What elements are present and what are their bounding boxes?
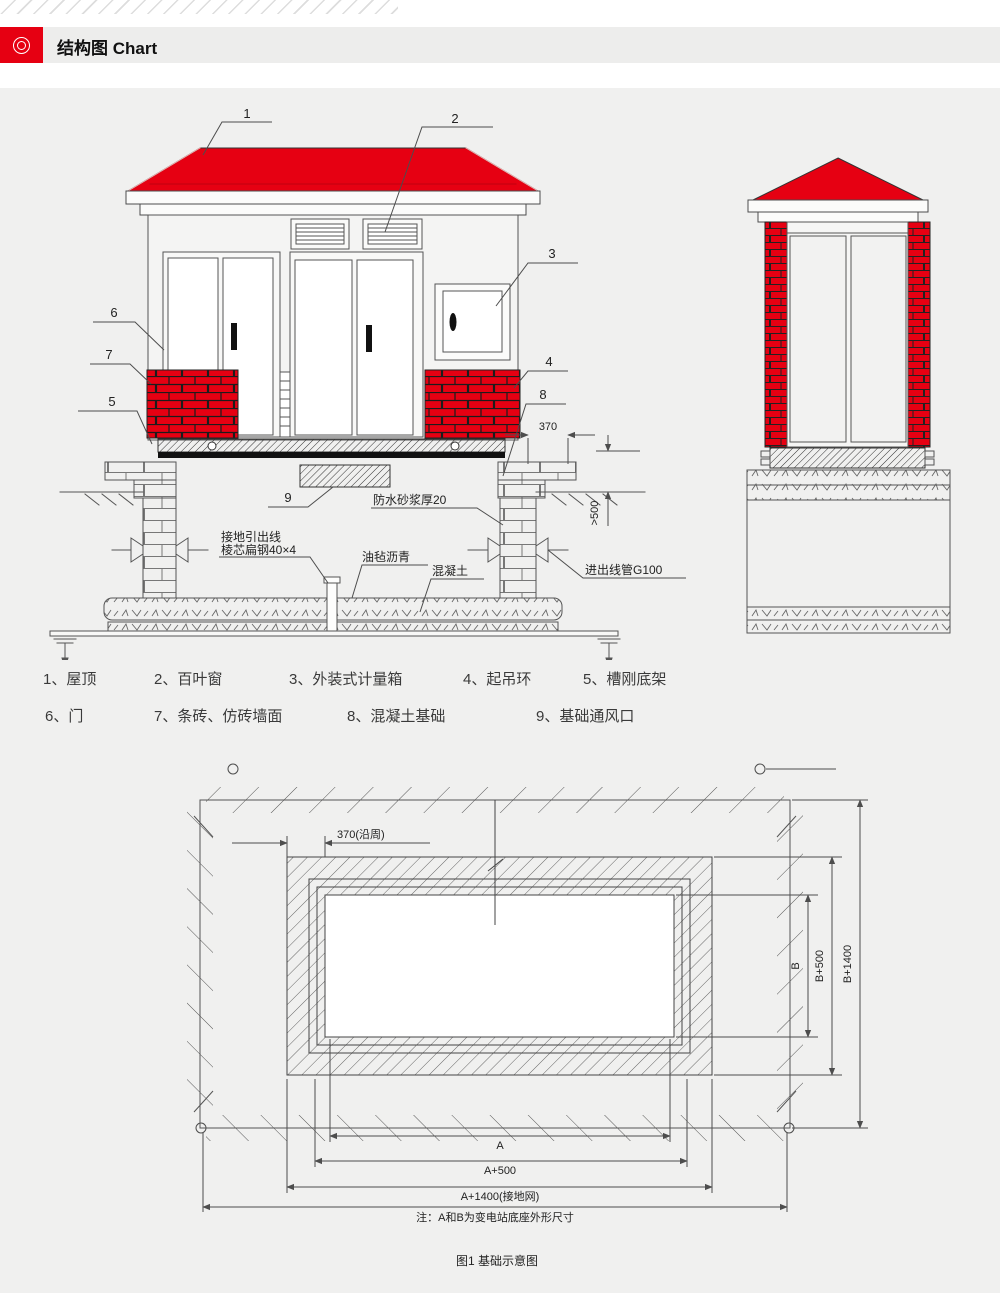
louver-vent-right: [363, 219, 422, 249]
door-assembly-middle: [290, 252, 423, 437]
foundation-pier-left: [105, 462, 176, 598]
front-roof: [128, 148, 538, 191]
door-handle: [366, 325, 372, 352]
front-fascia-upper: [126, 191, 540, 204]
door-handle: [231, 323, 237, 350]
structure-elevation-drawing: 1 2 3 6 7 5 4 8 9 防水砂浆厚20 接地引出线 棱芯扁钢40×4: [0, 88, 1000, 660]
dim-370-label: 370: [539, 421, 557, 433]
ground-anchor-right: [598, 639, 620, 660]
dim-overall-note: 注：A和B为变电站底座外形尺寸: [203, 1133, 787, 1224]
ring-target-icon: [13, 37, 30, 54]
callout-4-label: 4: [545, 354, 552, 369]
legend-item-louver: 2、百叶窗: [154, 668, 222, 689]
wall-ladder-strip: [280, 372, 290, 437]
side-brick-pillar-left: [765, 222, 787, 447]
side-fascia-lower: [758, 212, 918, 222]
louver-vent-left: [291, 219, 349, 249]
legend-item-fdnvent: 9、基础通风口: [536, 705, 634, 726]
channel-steel-base: [158, 439, 505, 458]
note-asphalt-label: 油毡沥青: [362, 550, 410, 564]
page: 结构图 Chart: [0, 0, 1000, 1293]
header-bar: 结构图 Chart: [0, 27, 1000, 63]
note-conduit: 进出线管G100: [548, 550, 686, 578]
foundation-plan-drawing: 370(沿周) B B+500 B+1400 A: [0, 740, 1000, 1293]
legend-item-channelbase: 5、槽刚底架: [583, 668, 666, 689]
side-brick-pillar-right: [908, 222, 930, 447]
side-foundation: [747, 470, 950, 633]
dim-gt500: >500: [589, 435, 640, 526]
side-door-panels: [787, 222, 908, 447]
front-fascia-lower: [140, 204, 526, 215]
note-waterproof-label: 防水砂浆厚20: [373, 492, 447, 507]
dim-a500-label: A+500: [484, 1165, 516, 1177]
callout-5: 5: [78, 394, 152, 444]
dim-a1400-label: A+1400(接地网): [461, 1190, 540, 1203]
legend-item-brickwall: 7、条砖、仿砖墙面: [154, 705, 282, 726]
callout-9: 9: [268, 487, 333, 507]
dim-b1400-label: B+1400: [842, 945, 854, 983]
callout-4: 4: [514, 354, 568, 388]
side-roof: [753, 158, 923, 200]
callout-9-label: 9: [284, 490, 291, 505]
callout-2-label: 2: [451, 111, 458, 126]
header-red-badge: [0, 27, 43, 63]
callout-6-label: 6: [110, 305, 117, 320]
dim-b-label: B: [790, 962, 802, 969]
dim-a-label: A: [496, 1140, 504, 1152]
note-conduit-label: 进出线管G100: [585, 562, 663, 577]
legend-item-liftring: 4、起吊环: [463, 668, 531, 689]
foundation-vent: [300, 465, 390, 487]
brick-wall-right: [425, 370, 520, 438]
ground-anchor-left: [54, 639, 76, 660]
dim-gt500-label: >500: [589, 501, 601, 526]
plan-note: 注：A和B为变电站底座外形尺寸: [416, 1210, 574, 1224]
ground-line-left: [60, 492, 143, 505]
brick-wall-left: [147, 370, 238, 438]
ground-slab: [50, 631, 618, 636]
note-ground-lead-line1: 接地引出线: [221, 529, 281, 544]
side-base-channel: [761, 448, 934, 468]
dim-b1400: B+1400: [792, 800, 868, 1128]
metering-box: [435, 284, 510, 360]
plan-caption: 图1 基础示意图: [456, 1253, 538, 1268]
dim-370-perimeter-label: 370(沿周): [337, 828, 385, 841]
legend-item-door: 6、门: [45, 705, 83, 726]
legend-item-roof: 1、屋顶: [43, 668, 96, 689]
dim-370-perimeter: 370(沿周): [232, 828, 430, 857]
header-stripes-decoration: [0, 0, 398, 14]
lifting-ring-right: [451, 442, 459, 450]
note-ground-lead-line2: 棱芯扁钢40×4: [221, 542, 296, 557]
side-view: [747, 158, 950, 633]
page-title: 结构图 Chart: [57, 34, 157, 59]
foundation-ring: [287, 800, 712, 1075]
lifting-ring-left: [208, 442, 216, 450]
note-asphalt: 油毡沥青: [352, 550, 428, 598]
callout-5-label: 5: [108, 394, 115, 409]
note-waterproof: 防水砂浆厚20: [371, 492, 503, 525]
foundation-pier-right: [498, 462, 576, 598]
callout-1-label: 1: [243, 106, 250, 121]
callout-7: 7: [90, 347, 151, 384]
legend-item-concretefdn: 8、混凝土基础: [347, 705, 445, 726]
callout-8-label: 8: [539, 387, 546, 402]
dim-b500-label: B+500: [814, 950, 826, 982]
note-ground-lead: 接地引出线 棱芯扁钢40×4: [219, 529, 328, 583]
note-concrete-label: 混凝土: [432, 563, 468, 578]
legend-item-meterbox: 3、外装式计量箱: [289, 668, 402, 689]
callout-7-label: 7: [105, 347, 112, 362]
side-fascia-upper: [748, 200, 928, 212]
callout-3-label: 3: [548, 246, 555, 261]
